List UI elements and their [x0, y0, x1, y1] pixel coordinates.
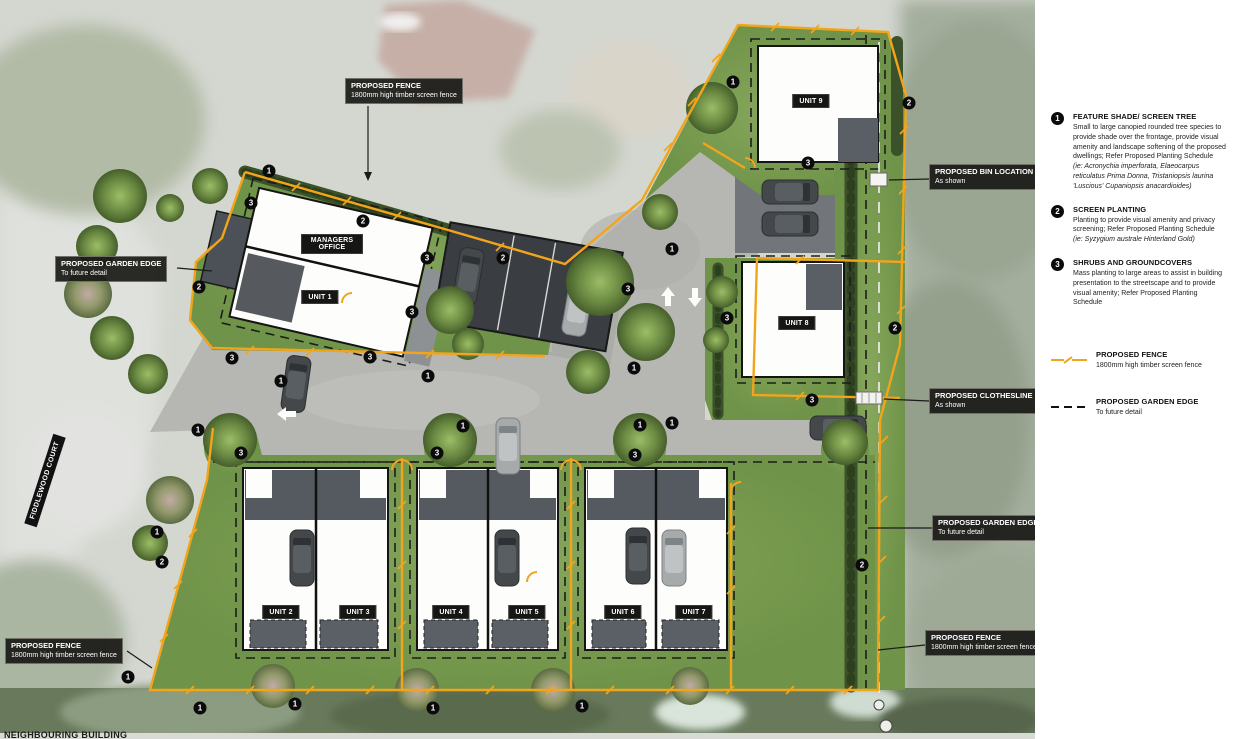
- landscape-site-plan: 1 3 2 2 3 2 3 3 3 1 1 1 3 1 2 3 3 2 1 3 …: [0, 0, 1237, 739]
- callout-proposed-fence-top: PROPOSED FENCE 1800mm high timber screen…: [345, 78, 463, 104]
- callout-garden-edge-right: PROPOSED GARDEN EDGE To future detail: [932, 515, 1044, 541]
- plant-marker: 3: [235, 447, 248, 460]
- plant-marker: 2: [889, 322, 902, 335]
- callout-sub: To future detail: [61, 269, 161, 278]
- plant-marker: 1: [666, 243, 679, 256]
- building-units-4-5: [417, 468, 558, 650]
- label-unit-4: UNIT 4: [432, 605, 469, 619]
- plant-marker: 1: [634, 419, 647, 432]
- legend-marker-1: 1: [1051, 112, 1064, 125]
- plant-marker: 1: [194, 702, 207, 715]
- callout-title: PROPOSED FENCE: [351, 81, 457, 91]
- legend-panel: 1 FEATURE SHADE/ SCREEN TREE Small to la…: [1035, 0, 1237, 739]
- legend-body: 1800mm high timber screen fence: [1096, 361, 1227, 371]
- plant-marker: 1: [192, 424, 205, 437]
- plant-marker: 1: [727, 76, 740, 89]
- plant-marker: 3: [629, 449, 642, 462]
- callout-title: PROPOSED CLOTHESLINE: [935, 391, 1033, 401]
- callout-proposed-fence-right: PROPOSED FENCE 1800mm high timber screen…: [925, 630, 1043, 656]
- label-unit-2: UNIT 2: [262, 605, 299, 619]
- legend-title: PROPOSED FENCE: [1096, 350, 1227, 359]
- plant-marker: 2: [497, 252, 510, 265]
- plant-marker: 2: [357, 215, 370, 228]
- plant-marker: 3: [806, 394, 819, 407]
- callout-sub: As shown: [935, 177, 1033, 186]
- legend-body: Planting to provide visual amenity and p…: [1073, 216, 1227, 236]
- label-unit-9: UNIT 9: [792, 94, 829, 108]
- plant-marker: 3: [406, 306, 419, 319]
- legend-item-proposed-fence: PROPOSED FENCE 1800mm high timber screen…: [1051, 350, 1227, 371]
- plant-marker: 3: [622, 283, 635, 296]
- label-unit-8: UNIT 8: [778, 316, 815, 330]
- legend-species: (ie: Syzygium australe Hinterland Gold): [1073, 235, 1227, 245]
- callout-sub: To future detail: [938, 528, 1038, 537]
- legend-item-garden-edge: PROPOSED GARDEN EDGE To future detail: [1051, 397, 1227, 418]
- legend-title: FEATURE SHADE/ SCREEN TREE: [1073, 112, 1227, 121]
- plant-marker: 1: [576, 700, 589, 713]
- plant-marker: 1: [263, 165, 276, 178]
- plant-marker: 1: [122, 671, 135, 684]
- plant-marker: 1: [275, 375, 288, 388]
- plant-marker: 3: [364, 351, 377, 364]
- plant-marker: 2: [156, 556, 169, 569]
- label-managers-office: MANAGERS OFFICE: [301, 234, 363, 254]
- plant-marker: 2: [856, 559, 869, 572]
- plant-marker: 3: [421, 252, 434, 265]
- fence-line-icon: [1051, 350, 1087, 370]
- callout-sub: As shown: [935, 401, 1033, 410]
- legend-body: To future detail: [1096, 408, 1227, 418]
- plant-marker: 1: [289, 698, 302, 711]
- callout-title: PROPOSED FENCE: [931, 633, 1037, 643]
- callout-sub: 1800mm high timber screen fence: [11, 651, 117, 660]
- plant-marker: 3: [802, 157, 815, 170]
- callout-proposed-fence-bottom-left: PROPOSED FENCE 1800mm high timber screen…: [5, 638, 123, 664]
- label-unit-6: UNIT 6: [604, 605, 641, 619]
- plant-marker: 1: [628, 362, 641, 375]
- legend-item-screen-planting: 2 SCREEN PLANTING Planting to provide vi…: [1051, 205, 1227, 245]
- legend-species: (ie: Acronychia imperforata, Elaeocarpus…: [1073, 162, 1227, 191]
- label-unit-7: UNIT 7: [675, 605, 712, 619]
- legend-item-shrubs: 3 SHRUBS AND GROUNDCOVERS Mass planting …: [1051, 258, 1227, 308]
- callout-title: PROPOSED FENCE: [11, 641, 117, 651]
- cropped-bottom-label: NEIGHBOURING BUILDING: [4, 728, 127, 739]
- plant-marker: 1: [457, 420, 470, 433]
- callout-clothesline: PROPOSED CLOTHESLINE As shown: [929, 388, 1039, 414]
- plant-marker: 1: [422, 370, 435, 383]
- plant-marker: 3: [721, 312, 734, 325]
- building-units-6-7: [585, 468, 727, 650]
- legend-body: Small to large canopied rounded tree spe…: [1073, 123, 1227, 162]
- legend-marker-3: 3: [1051, 258, 1064, 271]
- label-unit-5: UNIT 5: [508, 605, 545, 619]
- callout-title: PROPOSED GARDEN EDGE: [938, 518, 1038, 528]
- legend-title: SCREEN PLANTING: [1073, 205, 1227, 214]
- clothesline-symbol: [856, 392, 882, 404]
- legend-title: PROPOSED GARDEN EDGE: [1096, 397, 1227, 406]
- legend-body: Mass planting to large areas to assist i…: [1073, 269, 1227, 308]
- label-unit-1: UNIT 1: [301, 290, 338, 304]
- callout-title: PROPOSED BIN LOCATION: [935, 167, 1033, 177]
- callout-title: PROPOSED GARDEN EDGE: [61, 259, 161, 269]
- callout-garden-edge-left: PROPOSED GARDEN EDGE To future detail: [55, 256, 167, 282]
- bin-symbol: [870, 173, 887, 186]
- plant-marker: 3: [226, 352, 239, 365]
- dashed-line-icon: [1051, 397, 1087, 417]
- plant-marker: 1: [427, 702, 440, 715]
- legend-marker-2: 2: [1051, 205, 1064, 218]
- label-unit-3: UNIT 3: [339, 605, 376, 619]
- building-units-2-3: [243, 468, 388, 650]
- callout-sub: 1800mm high timber screen fence: [351, 91, 457, 100]
- plant-marker: 2: [193, 281, 206, 294]
- legend-item-feature-tree: 1 FEATURE SHADE/ SCREEN TREE Small to la…: [1051, 112, 1227, 192]
- plant-marker: 1: [151, 526, 164, 539]
- plant-marker: 3: [431, 447, 444, 460]
- plant-marker: 3: [245, 197, 258, 210]
- plant-marker: 1: [666, 417, 679, 430]
- callout-bin-location: PROPOSED BIN LOCATION As shown: [929, 164, 1039, 190]
- legend-title: SHRUBS AND GROUNDCOVERS: [1073, 258, 1227, 267]
- plant-marker: 2: [903, 97, 916, 110]
- callout-sub: 1800mm high timber screen fence: [931, 643, 1037, 652]
